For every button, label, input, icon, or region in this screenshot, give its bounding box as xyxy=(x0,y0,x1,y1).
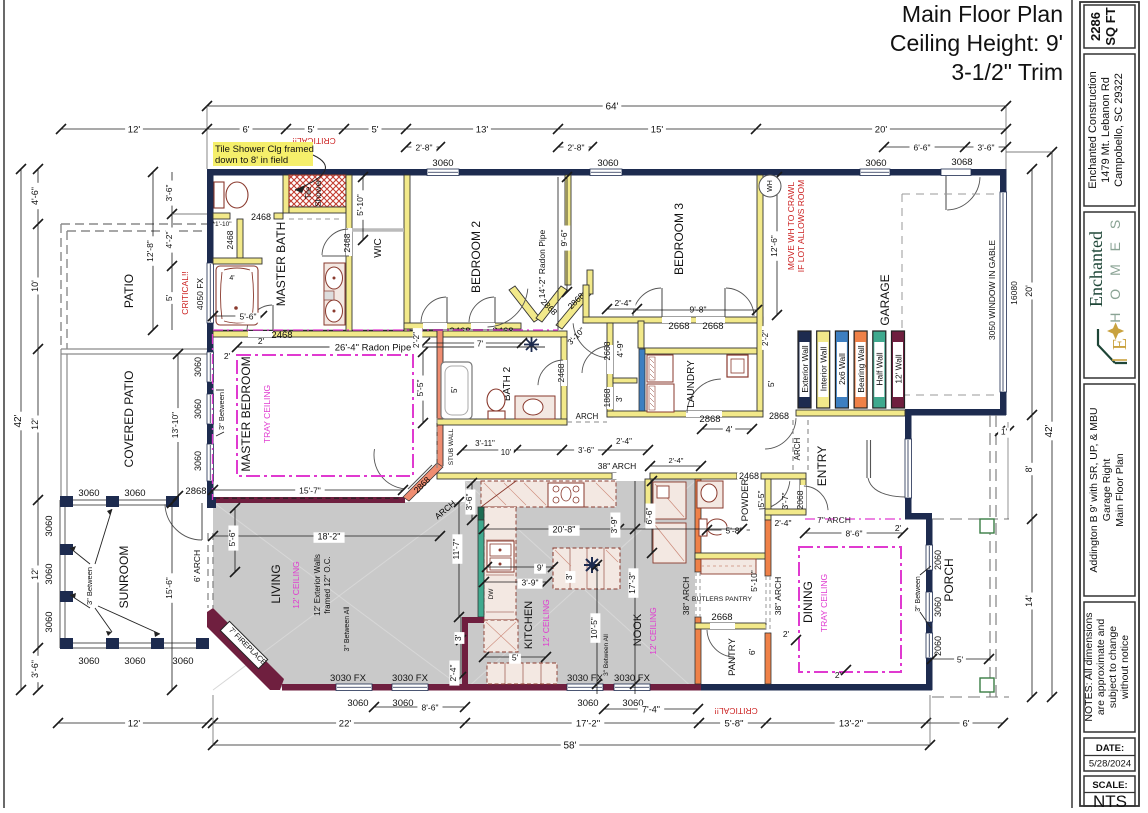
svg-text:26'-4" Radon Pipe: 26'-4" Radon Pipe xyxy=(335,342,412,353)
svg-text:20': 20' xyxy=(875,124,888,135)
svg-text:8': 8' xyxy=(1024,465,1034,472)
svg-text:6' ARCH: 6' ARCH xyxy=(192,550,202,582)
svg-text:12': 12' xyxy=(128,718,141,729)
svg-text:4': 4' xyxy=(726,424,733,434)
svg-text:Main Floor Plan: Main Floor Plan xyxy=(902,1,1063,27)
svg-text:12': 12' xyxy=(30,418,40,430)
svg-text:5'-8": 5'-8" xyxy=(725,718,744,729)
svg-text:3060: 3060 xyxy=(597,158,618,169)
svg-text:20': 20' xyxy=(1024,285,1034,297)
svg-text:3'-6": 3'-6" xyxy=(30,660,40,678)
svg-text:5'-10": 5'-10" xyxy=(749,570,759,592)
svg-text:Tile Shower Clg framed: Tile Shower Clg framed xyxy=(215,144,314,155)
svg-text:2468: 2468 xyxy=(556,363,566,382)
svg-text:12': 12' xyxy=(128,124,141,135)
svg-text:DW: DW xyxy=(488,588,495,600)
svg-text:2'-4": 2'-4" xyxy=(448,665,458,682)
svg-text:3060: 3060 xyxy=(44,611,55,632)
svg-text:4050 FX: 4050 FX xyxy=(195,278,205,310)
svg-text:12' CEILING: 12' CEILING xyxy=(541,599,551,646)
svg-text:2668: 2668 xyxy=(711,612,732,623)
svg-text:DATE:: DATE: xyxy=(1096,743,1124,754)
svg-text:3060: 3060 xyxy=(193,451,203,471)
svg-text:2'-4": 2'-4" xyxy=(615,298,632,308)
svg-text:BEDROOM 2: BEDROOM 2 xyxy=(469,221,483,293)
svg-text:2': 2' xyxy=(835,670,842,680)
svg-text:PATIO: PATIO xyxy=(122,274,136,308)
svg-text:2'-2": 2'-2" xyxy=(412,332,421,348)
svg-text:2'-8": 2'-8" xyxy=(568,142,585,152)
svg-text:2668: 2668 xyxy=(602,341,612,360)
svg-text:12' CEILING: 12' CEILING xyxy=(291,561,301,608)
svg-text:down to 8' in field: down to 8' in field xyxy=(215,155,288,166)
svg-text:12' CEILING: 12' CEILING xyxy=(648,607,658,654)
svg-text:2668: 2668 xyxy=(702,321,723,332)
svg-text:2'-4": 2'-4" xyxy=(669,456,684,465)
svg-text:3'-6": 3'-6" xyxy=(464,494,474,511)
svg-text:ARCH: ARCH xyxy=(793,437,802,460)
svg-text:2': 2' xyxy=(895,523,902,533)
svg-text:3'-6": 3'-6" xyxy=(164,185,174,202)
svg-text:POWDER: POWDER xyxy=(740,478,751,521)
svg-text:6': 6' xyxy=(242,124,249,135)
svg-text:3050 WINDOW IN GABLE: 3050 WINDOW IN GABLE xyxy=(987,240,997,340)
svg-text:3'-9": 3'-9" xyxy=(522,577,539,587)
svg-text:2868: 2868 xyxy=(699,414,720,425)
svg-text:9'-6": 9'-6" xyxy=(559,230,569,247)
svg-text:4'-9": 4'-9" xyxy=(615,341,625,358)
svg-text:PORCH: PORCH xyxy=(942,558,956,601)
svg-text:3030 FX: 3030 FX xyxy=(330,673,367,684)
svg-text:5': 5' xyxy=(164,294,174,301)
svg-text:2'-4": 2'-4" xyxy=(616,437,632,446)
svg-text:BEDROOM 3: BEDROOM 3 xyxy=(672,203,686,275)
svg-text:2'-2": 2'-2" xyxy=(761,330,770,346)
svg-text:4'-2": 4'-2" xyxy=(164,232,174,249)
svg-text:NTS: NTS xyxy=(1093,792,1127,808)
svg-text:22': 22' xyxy=(339,718,352,729)
svg-text:3060: 3060 xyxy=(193,399,203,419)
svg-text:ARCH: ARCH xyxy=(576,412,599,421)
svg-text:2868: 2868 xyxy=(769,411,789,421)
svg-text:58': 58' xyxy=(563,740,576,751)
svg-text:9'-8": 9'-8" xyxy=(690,304,707,314)
svg-text:2068: 2068 xyxy=(795,490,805,509)
svg-text:12' Exterior Walls: 12' Exterior Walls xyxy=(313,554,322,616)
svg-text:3060: 3060 xyxy=(44,563,55,584)
svg-text:18'-2": 18'-2" xyxy=(318,531,341,541)
svg-text:ENTRY: ENTRY xyxy=(815,446,829,486)
svg-text:10'-5": 10'-5" xyxy=(589,617,599,639)
svg-text:10': 10' xyxy=(501,448,512,457)
svg-text:Half Wall: Half Wall xyxy=(875,352,885,385)
svg-text:Tile: Tile xyxy=(304,186,313,199)
svg-text:5'-5": 5'-5" xyxy=(415,380,425,397)
svg-text:MASTER BEDROOM: MASTER BEDROOM xyxy=(239,356,253,471)
svg-text:SCALE:: SCALE: xyxy=(1092,780,1127,791)
svg-text:3" Between: 3" Between xyxy=(85,567,94,605)
svg-text:7': 7' xyxy=(477,338,484,348)
svg-text:Garage Right: Garage Right xyxy=(1101,459,1113,522)
svg-text:*1'-10": *1'-10" xyxy=(212,221,232,228)
svg-text:5': 5' xyxy=(307,124,314,135)
svg-text:MOVE WH TO CRAWL: MOVE WH TO CRAWL xyxy=(786,182,796,270)
svg-text:3'-11": 3'-11" xyxy=(475,439,495,448)
svg-text:7" ARCH: 7" ARCH xyxy=(817,515,851,525)
svg-text:12' Wall: 12' Wall xyxy=(893,354,903,383)
svg-text:15'-6": 15'-6" xyxy=(164,577,174,599)
svg-text:17'-3": 17'-3" xyxy=(627,572,637,594)
svg-text:Campobello, SC 29322: Campobello, SC 29322 xyxy=(1113,73,1125,187)
svg-text:3" Between All: 3" Between All xyxy=(603,634,610,676)
svg-text:2'-4": 2'-4" xyxy=(775,518,792,528)
svg-text:PANTRY: PANTRY xyxy=(727,638,738,676)
svg-text:2468: 2468 xyxy=(271,330,292,341)
svg-text:3-1/2" Trim: 3-1/2" Trim xyxy=(951,59,1063,85)
svg-text:3': 3' xyxy=(564,573,574,580)
svg-text:5': 5' xyxy=(957,654,964,664)
svg-text:H O M E S: H O M E S xyxy=(1107,215,1123,322)
svg-text:subject to change: subject to change xyxy=(1107,626,1119,708)
svg-text:Main Floor Plan: Main Floor Plan xyxy=(1114,453,1126,527)
svg-text:3" Between: 3" Between xyxy=(915,576,922,612)
svg-text:13'-2": 13'-2" xyxy=(839,718,863,729)
svg-text:38" ARCH: 38" ARCH xyxy=(681,577,691,615)
svg-text:SQ FT: SQ FT xyxy=(1103,7,1118,45)
svg-text:15': 15' xyxy=(651,124,664,135)
svg-text:5': 5' xyxy=(512,652,519,662)
svg-text:6': 6' xyxy=(747,648,757,655)
svg-text:10': 10' xyxy=(30,280,40,292)
svg-text:framed 12" O.C.: framed 12" O.C. xyxy=(323,556,332,614)
svg-text:13': 13' xyxy=(476,124,489,135)
svg-text:6'-6": 6'-6" xyxy=(644,508,654,525)
svg-text:3060: 3060 xyxy=(124,656,145,667)
svg-text:4': 4' xyxy=(229,275,234,282)
svg-text:38" ARCH: 38" ARCH xyxy=(598,461,636,471)
svg-text:1': 1' xyxy=(1001,426,1008,436)
svg-text:3060: 3060 xyxy=(44,515,55,536)
svg-text:6': 6' xyxy=(962,718,969,729)
svg-text:14'-2" Radon Pipe: 14'-2" Radon Pipe xyxy=(537,230,547,299)
svg-text:2468: 2468 xyxy=(342,233,352,252)
svg-text:2': 2' xyxy=(224,351,231,361)
svg-text:3060: 3060 xyxy=(78,488,99,499)
svg-text:42': 42' xyxy=(1044,424,1055,437)
svg-text:5': 5' xyxy=(450,387,459,393)
svg-text:20'-8": 20'-8" xyxy=(553,524,576,534)
svg-text:2': 2' xyxy=(258,336,265,346)
svg-text:WIC: WIC xyxy=(373,238,384,257)
svg-text:6'-6": 6'-6" xyxy=(914,142,931,152)
svg-text:E: E xyxy=(1109,338,1131,350)
svg-text:5/28/2024: 5/28/2024 xyxy=(1089,759,1131,770)
svg-text:2668: 2668 xyxy=(668,321,689,332)
svg-text:3'-7": 3'-7" xyxy=(780,493,790,510)
svg-text:TRAY CEILING: TRAY CEILING xyxy=(262,385,272,443)
svg-text:NOOK: NOOK xyxy=(632,613,644,646)
svg-text:Addington B 9' with SR, UP, &: Addington B 9' with SR, UP, & MBU xyxy=(1088,407,1100,572)
svg-text:5'-10": 5'-10" xyxy=(355,194,365,216)
svg-text:Shower: Shower xyxy=(314,179,323,206)
svg-text:3060: 3060 xyxy=(78,656,99,667)
svg-text:3': 3' xyxy=(453,634,463,641)
svg-text:1868: 1868 xyxy=(602,388,612,407)
svg-text:9': 9' xyxy=(537,562,544,572)
svg-text:3060: 3060 xyxy=(432,158,453,169)
svg-text:5': 5' xyxy=(766,380,776,387)
svg-text:3'-9": 3'-9" xyxy=(609,517,619,534)
svg-text:CRITICAL!!: CRITICAL!! xyxy=(714,706,757,716)
svg-text:5'-6": 5'-6" xyxy=(240,311,257,321)
svg-text:15'-7": 15'-7" xyxy=(299,485,321,495)
svg-text:DINING: DINING xyxy=(801,581,815,623)
svg-text:BUTLERS PANTRY: BUTLERS PANTRY xyxy=(692,596,753,603)
svg-text:8'-6": 8'-6" xyxy=(422,702,439,712)
svg-text:64': 64' xyxy=(605,101,618,112)
svg-text:NOTES: All dimensions: NOTES: All dimensions xyxy=(1083,612,1095,721)
svg-text:WH: WH xyxy=(767,180,774,192)
svg-text:2060: 2060 xyxy=(933,636,943,656)
svg-text:12'-6": 12'-6" xyxy=(769,235,779,257)
svg-text:TRAY CEILING: TRAY CEILING xyxy=(819,574,829,632)
svg-text:38" ARCH: 38" ARCH xyxy=(773,577,783,615)
svg-text:4'-6": 4'-6" xyxy=(30,187,40,205)
svg-text:3030 FX: 3030 FX xyxy=(392,673,429,684)
svg-text:3060: 3060 xyxy=(865,158,886,169)
svg-text:2'-8": 2'-8" xyxy=(416,142,433,152)
svg-text:2x6 Wall: 2x6 Wall xyxy=(837,353,847,385)
svg-text:5'-5": 5'-5" xyxy=(756,491,766,508)
svg-text:CRITICAL!!: CRITICAL!! xyxy=(180,271,190,314)
svg-text:5'-6": 5'-6" xyxy=(227,530,237,547)
svg-text:SUNROOM: SUNROOM xyxy=(117,546,131,609)
svg-text:Exterior Wall: Exterior Wall xyxy=(800,345,810,392)
svg-text:Ceiling Height: 9': Ceiling Height: 9' xyxy=(890,30,1063,56)
svg-text:3060: 3060 xyxy=(347,698,368,709)
svg-text:8'-6": 8'-6" xyxy=(846,528,863,538)
svg-text:KITCHEN: KITCHEN xyxy=(523,601,535,649)
svg-text:1479 Mt. Lebanon Rd: 1479 Mt. Lebanon Rd xyxy=(1100,77,1112,183)
svg-text:3060: 3060 xyxy=(577,698,598,709)
svg-text:2468: 2468 xyxy=(225,230,235,249)
svg-text:11'-7": 11'-7" xyxy=(451,538,461,559)
svg-text:Enchanted Construction: Enchanted Construction xyxy=(1087,71,1099,188)
svg-text:MASTER BATH: MASTER BATH xyxy=(274,222,288,306)
svg-text:12'-8": 12'-8" xyxy=(145,240,155,262)
svg-text:LIVING: LIVING xyxy=(269,564,283,603)
svg-text:3'-6": 3'-6" xyxy=(978,142,995,152)
svg-text:without notice: without notice xyxy=(1119,635,1131,700)
svg-text:3" Between All: 3" Between All xyxy=(344,606,351,651)
svg-text:13'-10": 13'-10" xyxy=(170,412,180,438)
svg-text:16080: 16080 xyxy=(1009,281,1019,305)
svg-text:3': 3' xyxy=(614,395,624,402)
svg-text:COVERED PATIO: COVERED PATIO xyxy=(122,371,136,468)
svg-text:3060: 3060 xyxy=(124,488,145,499)
svg-text:14': 14' xyxy=(1024,595,1034,607)
svg-text:are approximate and: are approximate and xyxy=(1095,619,1107,715)
svg-text:IF LOT ALLOWS ROOM: IF LOT ALLOWS ROOM xyxy=(796,180,806,272)
svg-text:3" Between: 3" Between xyxy=(217,392,226,430)
svg-text:3068: 3068 xyxy=(951,157,972,168)
svg-text:GARAGE: GARAGE xyxy=(878,274,892,325)
svg-text:2286: 2286 xyxy=(1088,12,1103,41)
svg-text:5': 5' xyxy=(371,124,378,135)
svg-text:Enchanted: Enchanted xyxy=(1086,231,1106,307)
svg-text:3060: 3060 xyxy=(172,656,193,667)
svg-text:2': 2' xyxy=(783,629,790,639)
svg-text:3030 FX: 3030 FX xyxy=(614,673,651,684)
svg-text:3'-6": 3'-6" xyxy=(578,446,594,455)
svg-text:2468: 2468 xyxy=(251,212,271,222)
svg-text:Bearing Wall: Bearing Wall xyxy=(856,345,866,392)
svg-text:12': 12' xyxy=(30,568,40,580)
svg-text:2868: 2868 xyxy=(185,486,206,497)
svg-text:Interior Wall: Interior Wall xyxy=(819,347,829,392)
svg-text:STUB WALL: STUB WALL xyxy=(448,428,455,465)
svg-text:7'-4": 7'-4" xyxy=(642,704,660,714)
svg-text:42': 42' xyxy=(13,414,24,427)
svg-text:LAUNDRY: LAUNDRY xyxy=(686,360,697,408)
svg-text:3060: 3060 xyxy=(193,357,203,377)
svg-text:17'-2": 17'-2" xyxy=(576,718,600,729)
